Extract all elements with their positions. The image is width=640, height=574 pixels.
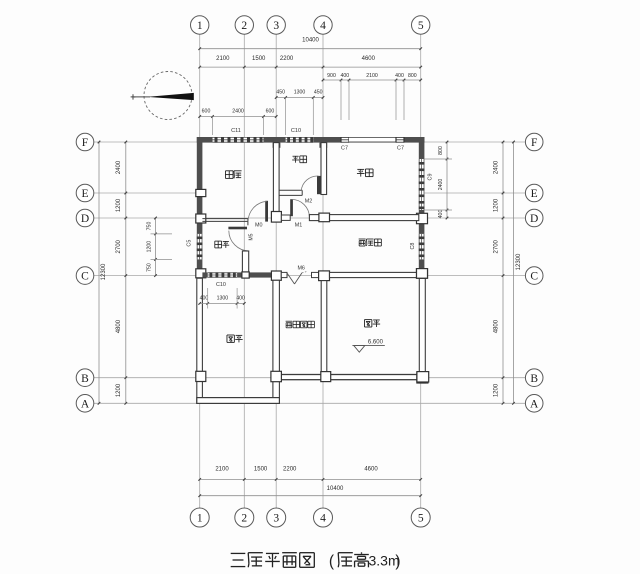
- svg-text:M0: M0: [255, 223, 263, 229]
- svg-text:1500: 1500: [252, 56, 266, 62]
- svg-text:400: 400: [236, 295, 245, 301]
- svg-text:): ): [395, 553, 400, 570]
- svg-text:2200: 2200: [283, 467, 297, 473]
- svg-text:2700: 2700: [493, 239, 499, 253]
- svg-text:C: C: [530, 271, 538, 283]
- svg-text:4: 4: [320, 513, 326, 525]
- svg-text:F: F: [82, 137, 88, 149]
- svg-text:400: 400: [438, 210, 444, 219]
- svg-text:1300: 1300: [294, 90, 306, 96]
- svg-text:M1: M1: [295, 223, 303, 229]
- svg-text:800: 800: [438, 146, 444, 155]
- svg-text:750: 750: [146, 222, 152, 231]
- svg-text:400: 400: [395, 73, 404, 79]
- svg-text:1: 1: [197, 20, 203, 32]
- svg-text:C11: C11: [231, 128, 241, 134]
- svg-text:2400: 2400: [438, 179, 444, 191]
- svg-text:12300: 12300: [516, 253, 522, 270]
- svg-text:E: E: [81, 188, 88, 200]
- svg-text:C5: C5: [186, 240, 192, 247]
- svg-text:1: 1: [197, 513, 203, 525]
- svg-text:A: A: [81, 398, 90, 410]
- svg-text:3: 3: [273, 20, 279, 32]
- svg-text:750: 750: [146, 263, 152, 272]
- svg-text:C10: C10: [291, 128, 301, 134]
- svg-text:M5: M5: [249, 233, 255, 240]
- svg-text:2: 2: [241, 20, 247, 32]
- svg-text:2100: 2100: [366, 73, 378, 79]
- svg-text:3: 3: [273, 513, 279, 525]
- svg-text:M6: M6: [297, 266, 305, 272]
- svg-text:A: A: [530, 398, 539, 410]
- svg-text:F: F: [531, 137, 537, 149]
- svg-text:M2: M2: [305, 199, 313, 205]
- svg-text:C7: C7: [341, 145, 348, 151]
- svg-text:D: D: [530, 213, 538, 225]
- svg-text:600: 600: [266, 108, 275, 114]
- svg-text:2: 2: [241, 513, 247, 525]
- svg-text:800: 800: [408, 73, 417, 79]
- svg-text:2100: 2100: [215, 467, 229, 473]
- svg-text:4800: 4800: [116, 319, 122, 333]
- svg-text:10400: 10400: [302, 38, 319, 44]
- svg-text:10400: 10400: [327, 486, 344, 492]
- svg-text:1500: 1500: [254, 467, 268, 473]
- svg-text:(: (: [329, 553, 335, 570]
- svg-text:900: 900: [327, 73, 336, 79]
- svg-text:1200: 1200: [116, 383, 122, 397]
- svg-text:C8: C8: [410, 243, 416, 250]
- svg-text:2400: 2400: [493, 160, 499, 174]
- svg-text:450: 450: [276, 90, 285, 96]
- svg-text:B: B: [81, 373, 89, 385]
- svg-text:4800: 4800: [493, 319, 499, 333]
- svg-text:1200: 1200: [116, 198, 122, 212]
- svg-text:4: 4: [320, 20, 326, 32]
- svg-text:4600: 4600: [364, 467, 378, 473]
- svg-text:400: 400: [200, 295, 209, 301]
- svg-text:E: E: [531, 188, 538, 200]
- svg-text:C: C: [81, 271, 89, 283]
- svg-text:2100: 2100: [216, 56, 230, 62]
- svg-text:B: B: [530, 373, 538, 385]
- svg-text:1200: 1200: [493, 198, 499, 212]
- svg-text:C9: C9: [428, 174, 434, 181]
- svg-text:C10: C10: [216, 282, 226, 288]
- svg-text:1300: 1300: [217, 295, 229, 301]
- svg-text:1200: 1200: [146, 241, 152, 253]
- svg-text:400: 400: [340, 73, 349, 79]
- svg-text:1200: 1200: [493, 383, 499, 397]
- svg-text:600: 600: [202, 108, 211, 114]
- svg-text:6.600: 6.600: [368, 339, 384, 345]
- svg-text:4600: 4600: [362, 56, 376, 62]
- svg-text:C7: C7: [397, 145, 404, 151]
- svg-text:2400: 2400: [232, 108, 244, 114]
- svg-text:5: 5: [418, 513, 424, 525]
- svg-text:D: D: [81, 213, 89, 225]
- svg-text:5: 5: [418, 20, 424, 32]
- svg-text:12300: 12300: [101, 263, 107, 280]
- svg-text:2200: 2200: [280, 56, 294, 62]
- svg-text:450: 450: [314, 90, 323, 96]
- svg-text:2700: 2700: [116, 239, 122, 253]
- svg-text:2400: 2400: [116, 160, 122, 174]
